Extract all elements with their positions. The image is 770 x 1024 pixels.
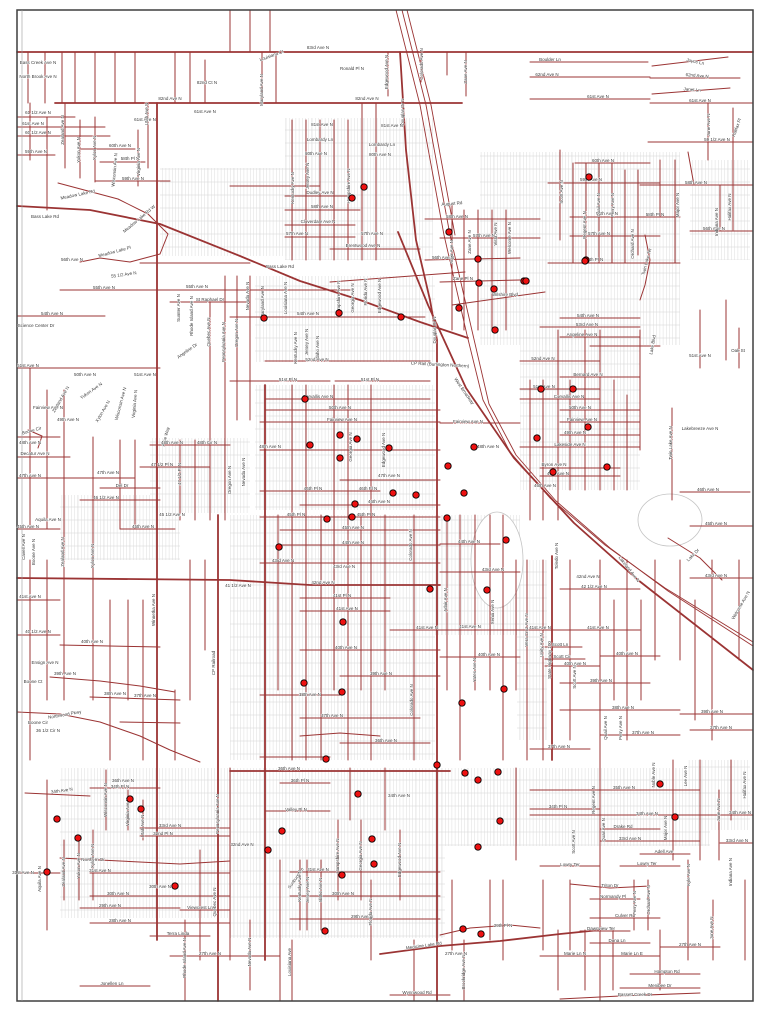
street-map-canvas[interactable]: Bass Creek Ave NNorth Brook Ave N83rd Av… <box>0 0 770 1024</box>
street-label: Colorado Ave N <box>409 684 414 715</box>
street-label: 51st Pl N <box>279 377 297 382</box>
poi-marker[interactable] <box>54 816 60 822</box>
street-label: 40th Ave N <box>81 639 103 644</box>
lake <box>638 494 702 546</box>
street-label: 40th Ave N <box>335 645 357 650</box>
street-label: Rhode Island Ave N <box>182 938 187 978</box>
poi-marker[interactable] <box>324 516 330 522</box>
street-label: 34th Ave N <box>636 811 658 816</box>
street-label: 41st Ave N <box>587 625 609 630</box>
street-label: 45 1/2 Ave N <box>159 512 185 517</box>
street-label: 31st Ave N <box>12 870 34 875</box>
street-label: 45th Ave N <box>132 524 154 529</box>
street-label: Yukon Ave N <box>76 137 81 163</box>
street-label: Menibee Dr <box>648 983 672 988</box>
street-label: 47 1/2 Pl N <box>177 463 182 485</box>
street-label: 59 1/2 Ave N <box>704 137 730 142</box>
street-label: Toledo Ave N <box>554 543 559 569</box>
street-label: Utah Ave N <box>144 103 149 126</box>
street-label: Ronald Pl N <box>340 66 364 71</box>
street-label: 41st Ave N <box>19 594 41 599</box>
street-label: Halifax Ave N <box>742 772 747 799</box>
street-label: Boone Ave N <box>31 539 36 565</box>
street-label: 41st Pl N <box>333 593 351 598</box>
street-label: Quail Ave N <box>603 716 608 740</box>
street-label: 42nd Ave N <box>576 574 599 579</box>
poi-marker[interactable] <box>462 770 468 776</box>
street-label: 36th Ave N <box>375 738 397 743</box>
poi-marker[interactable] <box>337 432 343 438</box>
street-label: 58th Ave N <box>685 180 707 185</box>
street-label: 56th Ave N <box>432 255 454 260</box>
street-label: 62nd Ave N <box>535 72 558 77</box>
poi-marker[interactable] <box>604 464 610 470</box>
parcel-block <box>255 276 435 362</box>
street-label: 36th Pl N <box>291 778 310 783</box>
street-label: 45th Pl N <box>357 512 376 517</box>
poi-marker[interactable] <box>369 836 375 842</box>
street-label: Hampton Rd <box>654 969 680 974</box>
street-label: Scott Cir <box>553 654 571 659</box>
street-label: 38th Ave N <box>612 705 634 710</box>
poi-marker[interactable] <box>261 315 267 321</box>
street-label: 28th Ave N <box>109 918 131 923</box>
street-label: Perry Ave N <box>632 891 637 915</box>
poi-marker[interactable] <box>657 781 663 787</box>
street-label: Perry Ave N <box>610 193 615 217</box>
street-label: Zealand Ave N <box>61 857 66 886</box>
street-label: 50th Ave N <box>569 405 591 410</box>
street-label: Zane Ave N <box>463 60 468 83</box>
street-label: Winnetka Ave N <box>151 594 156 626</box>
street-label: Zane Ave N <box>467 230 472 253</box>
street-label: 43rd Ave N <box>333 564 355 569</box>
poi-marker[interactable] <box>475 256 481 262</box>
poi-marker[interactable] <box>355 791 361 797</box>
street-label: Quail Ave N <box>601 818 606 842</box>
street-label: 44th Ave N <box>458 539 480 544</box>
poi-marker[interactable] <box>265 847 271 853</box>
street-label: 57th Ave N <box>473 233 495 238</box>
poi-marker[interactable] <box>497 818 503 824</box>
street-label: 43rd Ave N <box>705 573 727 578</box>
street-label: Lowry Ter <box>560 862 580 867</box>
poi-marker[interactable] <box>461 490 467 496</box>
street-label: Aquila Ave N <box>35 517 61 522</box>
street-label: 29th Ave N <box>99 903 121 908</box>
street-label: 37th Ave N <box>710 725 732 730</box>
street-label: 82nd Ave N <box>355 96 378 101</box>
street-label: Sumter Ave N <box>176 294 181 322</box>
street-label: Cloverdale Ave N <box>301 219 336 224</box>
street-label: Byron Ave N <box>542 462 567 467</box>
street-label: Pennsylvania Ave N <box>215 794 220 834</box>
poi-marker[interactable] <box>476 280 482 286</box>
street-label: Fairview Ave N <box>567 417 597 422</box>
street-label: Edgewood Ave N <box>384 55 389 89</box>
street-label: 43rd Ave N <box>272 558 294 563</box>
poi-marker[interactable] <box>138 806 144 812</box>
poi-marker[interactable] <box>459 700 465 706</box>
street-label: Florida Ave N <box>368 899 373 926</box>
poi-marker[interactable] <box>570 386 576 392</box>
street-label: 40th Ave N <box>564 661 586 666</box>
street-label: Welcome Ave N <box>507 222 512 254</box>
street-label: 61 1/2 Ave N <box>25 110 51 115</box>
poi-marker[interactable] <box>361 184 367 190</box>
street-label: Indiana Ave N <box>714 208 719 236</box>
parcel-block <box>160 168 305 256</box>
street-label: 46th Ave N <box>534 483 556 488</box>
street-label: Wynnwood Rd <box>402 990 432 995</box>
street-label: 52nd Ave N <box>531 356 554 361</box>
poi-marker[interactable] <box>340 619 346 625</box>
street-label: Lakebreeze Ave N <box>682 426 719 431</box>
street-label: Virginia Ave N <box>136 148 141 176</box>
poi-marker[interactable] <box>478 931 484 937</box>
street-label: Edgewood Ave N <box>381 433 386 467</box>
street-label: 40th Ave N <box>616 651 638 656</box>
street-label: Jersey Ave N <box>305 877 310 903</box>
street-label: Unity Ave N <box>539 633 544 656</box>
street-label: Major Ave N <box>663 816 668 840</box>
street-label: 37th Ave N <box>548 744 570 749</box>
street-label: Georgia Ave N <box>358 841 363 870</box>
street-label: Twin Lake Ave N <box>668 426 673 459</box>
poi-marker[interactable] <box>302 396 308 402</box>
street-label: 46th Ave N <box>697 487 719 492</box>
street-label: Vera Cruz Ave N <box>524 613 529 646</box>
poi-marker[interactable] <box>434 762 440 768</box>
street-label: Oregon Ave N <box>234 319 239 347</box>
poi-marker[interactable] <box>279 828 285 834</box>
street-label: 45th Ave N <box>342 525 364 530</box>
street-label: 61st Ave N <box>689 98 711 103</box>
street-label: Nevada Ave N <box>241 458 246 487</box>
street-label: Douglas Dr N <box>432 316 437 343</box>
street-label: Pennsylvania Ave N <box>221 322 226 362</box>
street-label: 82nd Ct N <box>197 80 217 85</box>
street-label: Maryland Ave N <box>260 286 265 318</box>
street-label: 54th Ave N <box>577 313 599 318</box>
poi-marker[interactable] <box>475 777 481 783</box>
street-label: Dona Ln <box>608 938 626 943</box>
street-label: Lombardy Ln <box>307 137 334 142</box>
street-label: Quail Ave N <box>596 193 601 217</box>
street-label: 48th Ave N <box>19 440 41 445</box>
street-label: 60 1/2 Ave N <box>25 130 51 135</box>
street-label: 55th Ave N <box>186 284 208 289</box>
street-label: 51st Pl N <box>361 377 379 382</box>
poi-marker[interactable] <box>75 835 81 841</box>
poi-marker[interactable] <box>523 278 529 284</box>
street-label: Xylon Ave N <box>90 844 95 868</box>
street-label: 36th Ave N <box>112 778 134 783</box>
street-label: 30th Ave N <box>332 891 354 896</box>
street-label: Scott Ave N <box>572 665 577 688</box>
street-label: 61st Ave N <box>194 109 216 114</box>
street-label: 36 1/2 Cir N <box>36 728 60 733</box>
street-label: Boone Cir <box>28 720 49 725</box>
street-label: Bass Lake Rd <box>266 264 295 269</box>
poi-marker[interactable] <box>413 492 419 498</box>
street-label: 46th Ave N <box>368 499 390 504</box>
poi-marker[interactable] <box>550 469 556 475</box>
street-label: Edgewood Ave N <box>377 279 382 313</box>
street-label: Zane Pl N <box>453 276 473 281</box>
poi-marker[interactable] <box>349 514 355 520</box>
street-label: Vista Ave N <box>493 222 498 245</box>
street-label: Decatur Ave N <box>21 451 50 456</box>
parcel-block <box>230 515 435 690</box>
street-label: 83rd Ave N <box>307 45 329 50</box>
street-label: 30th Ave N <box>149 884 171 889</box>
street-label: 32nd Ave N <box>230 842 253 847</box>
street-label: 51st Ave N <box>134 372 156 377</box>
street-label: Georgia Ave N <box>348 432 353 461</box>
street-label: 61st Ave N <box>587 94 609 99</box>
street-label: Kyle Ave N <box>686 864 691 886</box>
street-label: Noble Ave N <box>651 763 656 788</box>
street-label: 41st Ave N <box>416 625 438 630</box>
street-label: Brookridge Ave N <box>461 955 466 990</box>
street-label: Yates Ave N <box>472 658 477 682</box>
street-label: Bassett Creek Dr <box>618 992 653 997</box>
poi-marker[interactable] <box>492 327 498 333</box>
poi-marker[interactable] <box>339 689 345 695</box>
street-label: Utah Ave N <box>140 815 145 838</box>
street-label: 82nd Ave N <box>158 96 181 101</box>
street-label: Adair Ave N <box>443 588 448 612</box>
street-label: June Ave N <box>709 917 714 940</box>
poi-marker[interactable] <box>301 680 307 686</box>
street-label: 56th Ave N <box>61 257 83 262</box>
street-label: 46th Pl N <box>359 486 378 491</box>
street-label: Nevada Ave N <box>245 282 250 311</box>
poi-marker[interactable] <box>582 258 588 264</box>
poi-marker[interactable] <box>446 229 452 235</box>
street-label: 40th Ave N <box>478 652 500 657</box>
street-label: Valley Pl N <box>285 807 307 812</box>
poi-marker[interactable] <box>390 490 396 496</box>
street-label: 58th Pl N <box>646 212 665 217</box>
street-label: 34th Pl N <box>549 804 568 809</box>
street-label: Scott Ave N <box>571 830 576 853</box>
street-label: Maryland Ave N <box>259 74 264 106</box>
street-label: 81st Ave N <box>311 122 333 127</box>
street-label: 57th Ave N <box>588 231 610 236</box>
street-label: Jonellen Ln <box>100 981 124 986</box>
street-label: 51st Ave N <box>689 353 711 358</box>
street-label: Drake Rd <box>613 824 633 829</box>
street-label: 34th Pl N <box>111 784 130 789</box>
street-label: 47th Ave N <box>19 473 41 478</box>
street-label: Scott Ave N <box>559 180 564 203</box>
poi-marker[interactable] <box>585 424 591 430</box>
poi-marker[interactable] <box>456 305 462 311</box>
street-label: 30th Ave N <box>107 891 129 896</box>
street-label: Marie Ln E <box>621 951 643 956</box>
poi-marker[interactable] <box>322 928 328 934</box>
street-label: 50th Ave N <box>74 372 96 377</box>
street-label: Fairview Ave N <box>327 417 357 422</box>
street-label: 34th Ave N <box>729 810 751 815</box>
street-label: 47th Ave N <box>97 470 119 475</box>
street-label: North Brook Ave N <box>19 74 56 79</box>
poi-marker[interactable] <box>276 544 282 550</box>
street-label: Wisconsin Ave N <box>103 783 108 817</box>
street-label: 42nd Ave N <box>311 580 334 585</box>
poi-marker[interactable] <box>538 386 544 392</box>
poi-marker[interactable] <box>495 769 501 775</box>
street-label: Quebec Ave N <box>206 318 211 347</box>
street-label: Angeline Ave N <box>567 332 598 337</box>
poi-marker[interactable] <box>352 501 358 507</box>
street-label: Scott Ln <box>552 642 569 647</box>
street-label: Triton Dr <box>601 883 619 888</box>
street-label: Ensign Ave N <box>32 660 59 665</box>
street-label: Colorado Ave N <box>408 529 413 560</box>
street-label: CP Railroad <box>211 650 216 675</box>
poi-marker[interactable] <box>371 861 377 867</box>
street-label: Georgia Ave N <box>350 283 355 312</box>
poi-marker[interactable] <box>672 814 678 820</box>
street-label: 37th Ave N <box>321 713 343 718</box>
poi-marker[interactable] <box>339 872 345 878</box>
street-label: 51st Ave N <box>17 363 39 368</box>
street-label: 54th Ave N <box>297 311 319 316</box>
poi-marker[interactable] <box>337 455 343 461</box>
street-label: Regent Ave N <box>582 211 587 239</box>
poi-marker[interactable] <box>127 796 133 802</box>
street-label: 39th Ave N <box>54 671 76 676</box>
street-label: 48th Ave N <box>477 444 499 449</box>
poi-marker[interactable] <box>386 445 392 451</box>
street-label: Orchard Ave N <box>630 229 635 258</box>
street-label: Louisiana Ave <box>287 948 292 976</box>
poi-marker[interactable] <box>534 435 540 441</box>
street-label: Zealand Ave N <box>60 115 65 144</box>
street-label: 27th Ave N <box>199 951 221 956</box>
street-label: Normandy Pl <box>600 894 626 899</box>
street-label: Nevada Ave N <box>247 938 252 967</box>
street-label: Major Ave N <box>675 193 680 217</box>
street-label: Boone Ct <box>24 679 44 684</box>
street-label: 35th Ave N <box>613 785 635 790</box>
street-label: 44th Ave N <box>342 540 364 545</box>
street-label: Bernard Ave N <box>573 372 602 377</box>
street-label: 49th Ave N <box>57 417 79 422</box>
poi-marker[interactable] <box>503 537 509 543</box>
street-label: 61st Ave N <box>22 121 44 126</box>
street-label: 46 1/2 Ave N <box>93 495 119 500</box>
street-label: Orchard Ave N <box>646 885 651 914</box>
street-label: 47 1/2 Pl N <box>151 462 173 467</box>
poi-marker[interactable] <box>460 926 466 932</box>
street-label: Corvallis Ave N <box>554 394 584 399</box>
street-label: Indiana Ave N <box>728 858 733 886</box>
poi-marker[interactable] <box>354 436 360 442</box>
street-label: 38th Ave N <box>104 691 126 696</box>
street-label: Bass Lake Rd <box>31 214 60 219</box>
street-label: Rhode Island Ave N <box>189 296 194 336</box>
street-label: Kentucky Ave N <box>293 332 298 364</box>
street-label: 37th Ave N <box>632 730 654 735</box>
street-label: 42 1/2 Ave N <box>581 584 607 589</box>
street-label: Florida Ave N <box>363 279 368 306</box>
poi-marker[interactable] <box>484 587 490 593</box>
street-label: Del Dr <box>116 483 129 488</box>
street-label: Dudley Ave N <box>306 190 333 195</box>
street-label: 34th Ave N <box>388 793 410 798</box>
poi-marker[interactable] <box>445 463 451 469</box>
street-label: Lombardy Ln <box>369 142 396 147</box>
poi-marker[interactable] <box>323 756 329 762</box>
street-label: Hampshire Ave N <box>335 839 340 874</box>
street-label: 33rd Ave N <box>159 823 181 828</box>
poi-marker[interactable] <box>44 869 50 875</box>
street-label: Perry Ave N <box>618 716 623 740</box>
poi-marker[interactable] <box>172 883 178 889</box>
poi-marker[interactable] <box>307 442 313 448</box>
poi-marker[interactable] <box>444 515 450 521</box>
street-label: Culver Rd <box>615 913 636 918</box>
street-label: 49th Ave N <box>564 430 586 435</box>
street-label: 58th Ave N <box>446 214 468 219</box>
street-label: Regent Ave N <box>591 786 596 814</box>
street-label: 38th Ave N <box>299 692 321 697</box>
poi-marker[interactable] <box>427 586 433 592</box>
poi-marker[interactable] <box>471 444 477 450</box>
street-label: 53rd Ave N <box>576 322 598 327</box>
street-label: 50th Ave N <box>329 405 351 410</box>
street-label: 27th Ave N <box>679 942 701 947</box>
street-label: 33rd Ave N <box>726 838 748 843</box>
street-label: 80th Ave N <box>369 152 391 157</box>
street-label: 52nd Ave N <box>305 357 328 362</box>
street-label: 48th Ave N <box>161 440 183 445</box>
poi-marker[interactable] <box>491 286 497 292</box>
poi-marker[interactable] <box>336 310 342 316</box>
street-label: 48th Ave N <box>259 444 281 449</box>
poi-marker[interactable] <box>586 174 592 180</box>
street-label: 33rd Ave N <box>619 836 641 841</box>
poi-marker[interactable] <box>349 195 355 201</box>
street-label: Jersey Ave N <box>304 329 309 355</box>
street-label: Kentucky Ave N <box>297 870 302 902</box>
street-label: Louisiana Ave N <box>283 282 288 314</box>
street-label: Oregon Ave N <box>227 466 232 494</box>
street-label: Lee Ave N <box>683 766 688 787</box>
street-label: Adell Ave <box>655 849 674 854</box>
street-label: Idaho Ave N <box>318 878 323 902</box>
street-label: Halifax Ave N <box>727 194 732 221</box>
poi-marker[interactable] <box>501 686 507 692</box>
street-label: Quebec Ave N <box>212 888 217 917</box>
street-label: 54th Ave N <box>41 311 63 316</box>
street-label: 45th Ave N <box>17 524 39 529</box>
poi-marker[interactable] <box>398 314 404 320</box>
street-label: Lakeside Ave N <box>554 442 585 447</box>
street-label: 39th Ave N <box>370 671 392 676</box>
street-label: 45th Pl N <box>287 512 306 517</box>
street-label: 41st Ave N <box>529 625 551 630</box>
street-label: June Ave N <box>706 114 711 137</box>
street-label: 57th Ave N <box>286 231 308 236</box>
street-label: Boulder Ln <box>539 57 561 62</box>
street-label: Jersey Ave N <box>305 163 310 189</box>
poi-marker[interactable] <box>475 844 481 850</box>
